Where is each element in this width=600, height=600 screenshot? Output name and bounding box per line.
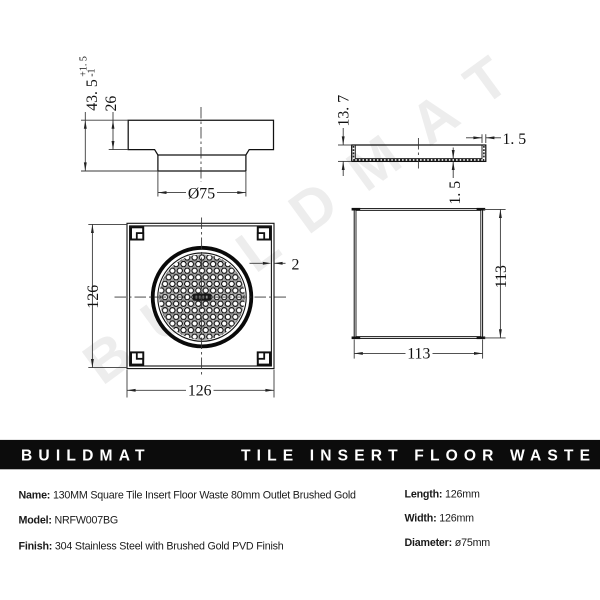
- svg-text:Name: 130MM Square Tile Insert: Name: 130MM Square Tile Insert Floor Was…: [19, 490, 357, 502]
- svg-text:Ø75: Ø75: [188, 185, 215, 202]
- svg-text:26: 26: [103, 96, 120, 112]
- svg-text:1. 5: 1. 5: [503, 131, 527, 148]
- svg-text:126: 126: [188, 383, 212, 400]
- svg-text:43. 5: 43. 5: [84, 79, 101, 111]
- svg-text:Model: NRFW007BG: Model: NRFW007BG: [19, 514, 119, 526]
- svg-text:1. 5: 1. 5: [447, 181, 464, 205]
- svg-text:Finish: 304 Stainless Steel w: Finish: 304 Stainless Steel with Brushed…: [19, 541, 284, 553]
- svg-text:BUILDMAT: BUILDMAT: [72, 27, 544, 397]
- svg-text:BUILDMAT: BUILDMAT: [21, 447, 145, 464]
- svg-text:113: 113: [493, 265, 510, 288]
- svg-text:2: 2: [292, 257, 300, 274]
- svg-text:126: 126: [85, 285, 102, 309]
- svg-text:Length: 126mm: Length: 126mm: [405, 488, 480, 500]
- svg-text:-1: -1: [86, 68, 97, 76]
- svg-text:Width: 126mm: Width: 126mm: [405, 513, 475, 525]
- svg-text:113: 113: [407, 346, 430, 363]
- svg-text:13. 7: 13. 7: [335, 95, 352, 127]
- svg-text:Diameter: ø75mm: Diameter: ø75mm: [405, 537, 491, 549]
